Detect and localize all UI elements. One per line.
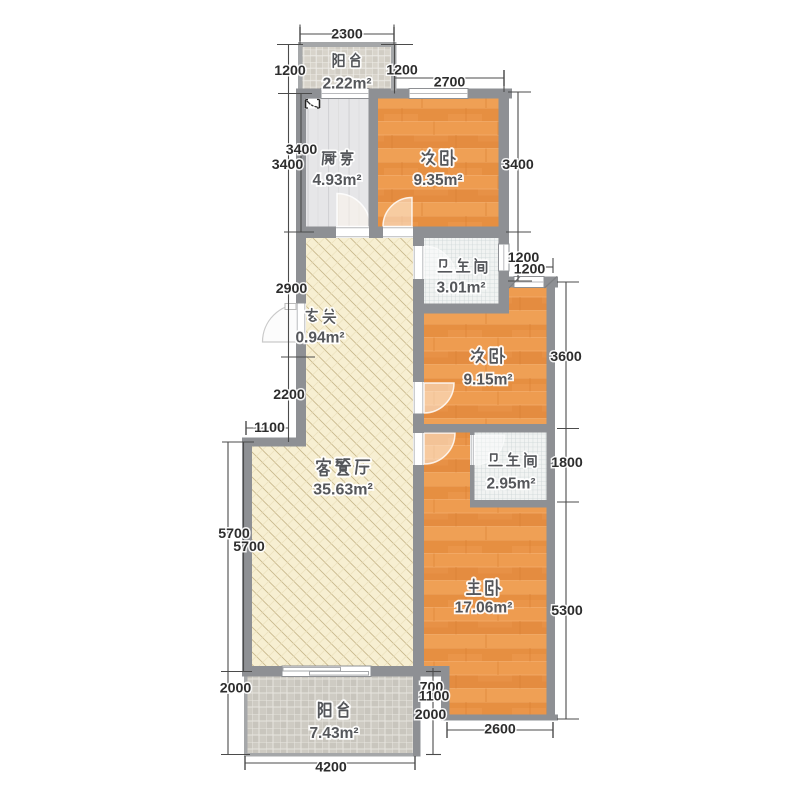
svg-text:9.35m²: 9.35m² xyxy=(413,172,462,189)
svg-text:3400: 3400 xyxy=(286,142,318,158)
svg-text:1200: 1200 xyxy=(514,262,546,278)
svg-text:1100: 1100 xyxy=(254,420,285,436)
svg-text:2000: 2000 xyxy=(220,681,252,697)
svg-text:5700: 5700 xyxy=(233,539,265,555)
svg-text:1800: 1800 xyxy=(551,455,583,471)
svg-text:2300: 2300 xyxy=(331,27,363,43)
svg-text:3400: 3400 xyxy=(272,157,304,173)
svg-text:2700: 2700 xyxy=(434,75,466,91)
svg-text:2.22m²: 2.22m² xyxy=(322,76,371,93)
svg-text:9.15m²: 9.15m² xyxy=(463,372,512,389)
svg-text:1100: 1100 xyxy=(419,689,450,705)
svg-text:17.06m²: 17.06m² xyxy=(455,600,513,617)
svg-text:2200: 2200 xyxy=(273,387,305,403)
svg-text:5300: 5300 xyxy=(551,603,583,619)
svg-text:35.63m²: 35.63m² xyxy=(313,482,373,499)
svg-text:3.01m²: 3.01m² xyxy=(436,280,485,297)
svg-text:2600: 2600 xyxy=(484,722,516,738)
svg-text:0.94m²: 0.94m² xyxy=(295,330,344,347)
svg-text:1200: 1200 xyxy=(386,63,418,79)
svg-text:2900: 2900 xyxy=(276,281,308,297)
svg-text:7.43m²: 7.43m² xyxy=(309,725,358,742)
svg-text:4.93m²: 4.93m² xyxy=(312,172,361,189)
svg-text:2.95m²: 2.95m² xyxy=(486,476,535,493)
svg-text:2000: 2000 xyxy=(415,707,447,723)
svg-text:3600: 3600 xyxy=(550,349,582,365)
svg-text:1200: 1200 xyxy=(274,63,306,79)
svg-text:3400: 3400 xyxy=(502,157,534,173)
svg-text:4200: 4200 xyxy=(315,760,347,776)
